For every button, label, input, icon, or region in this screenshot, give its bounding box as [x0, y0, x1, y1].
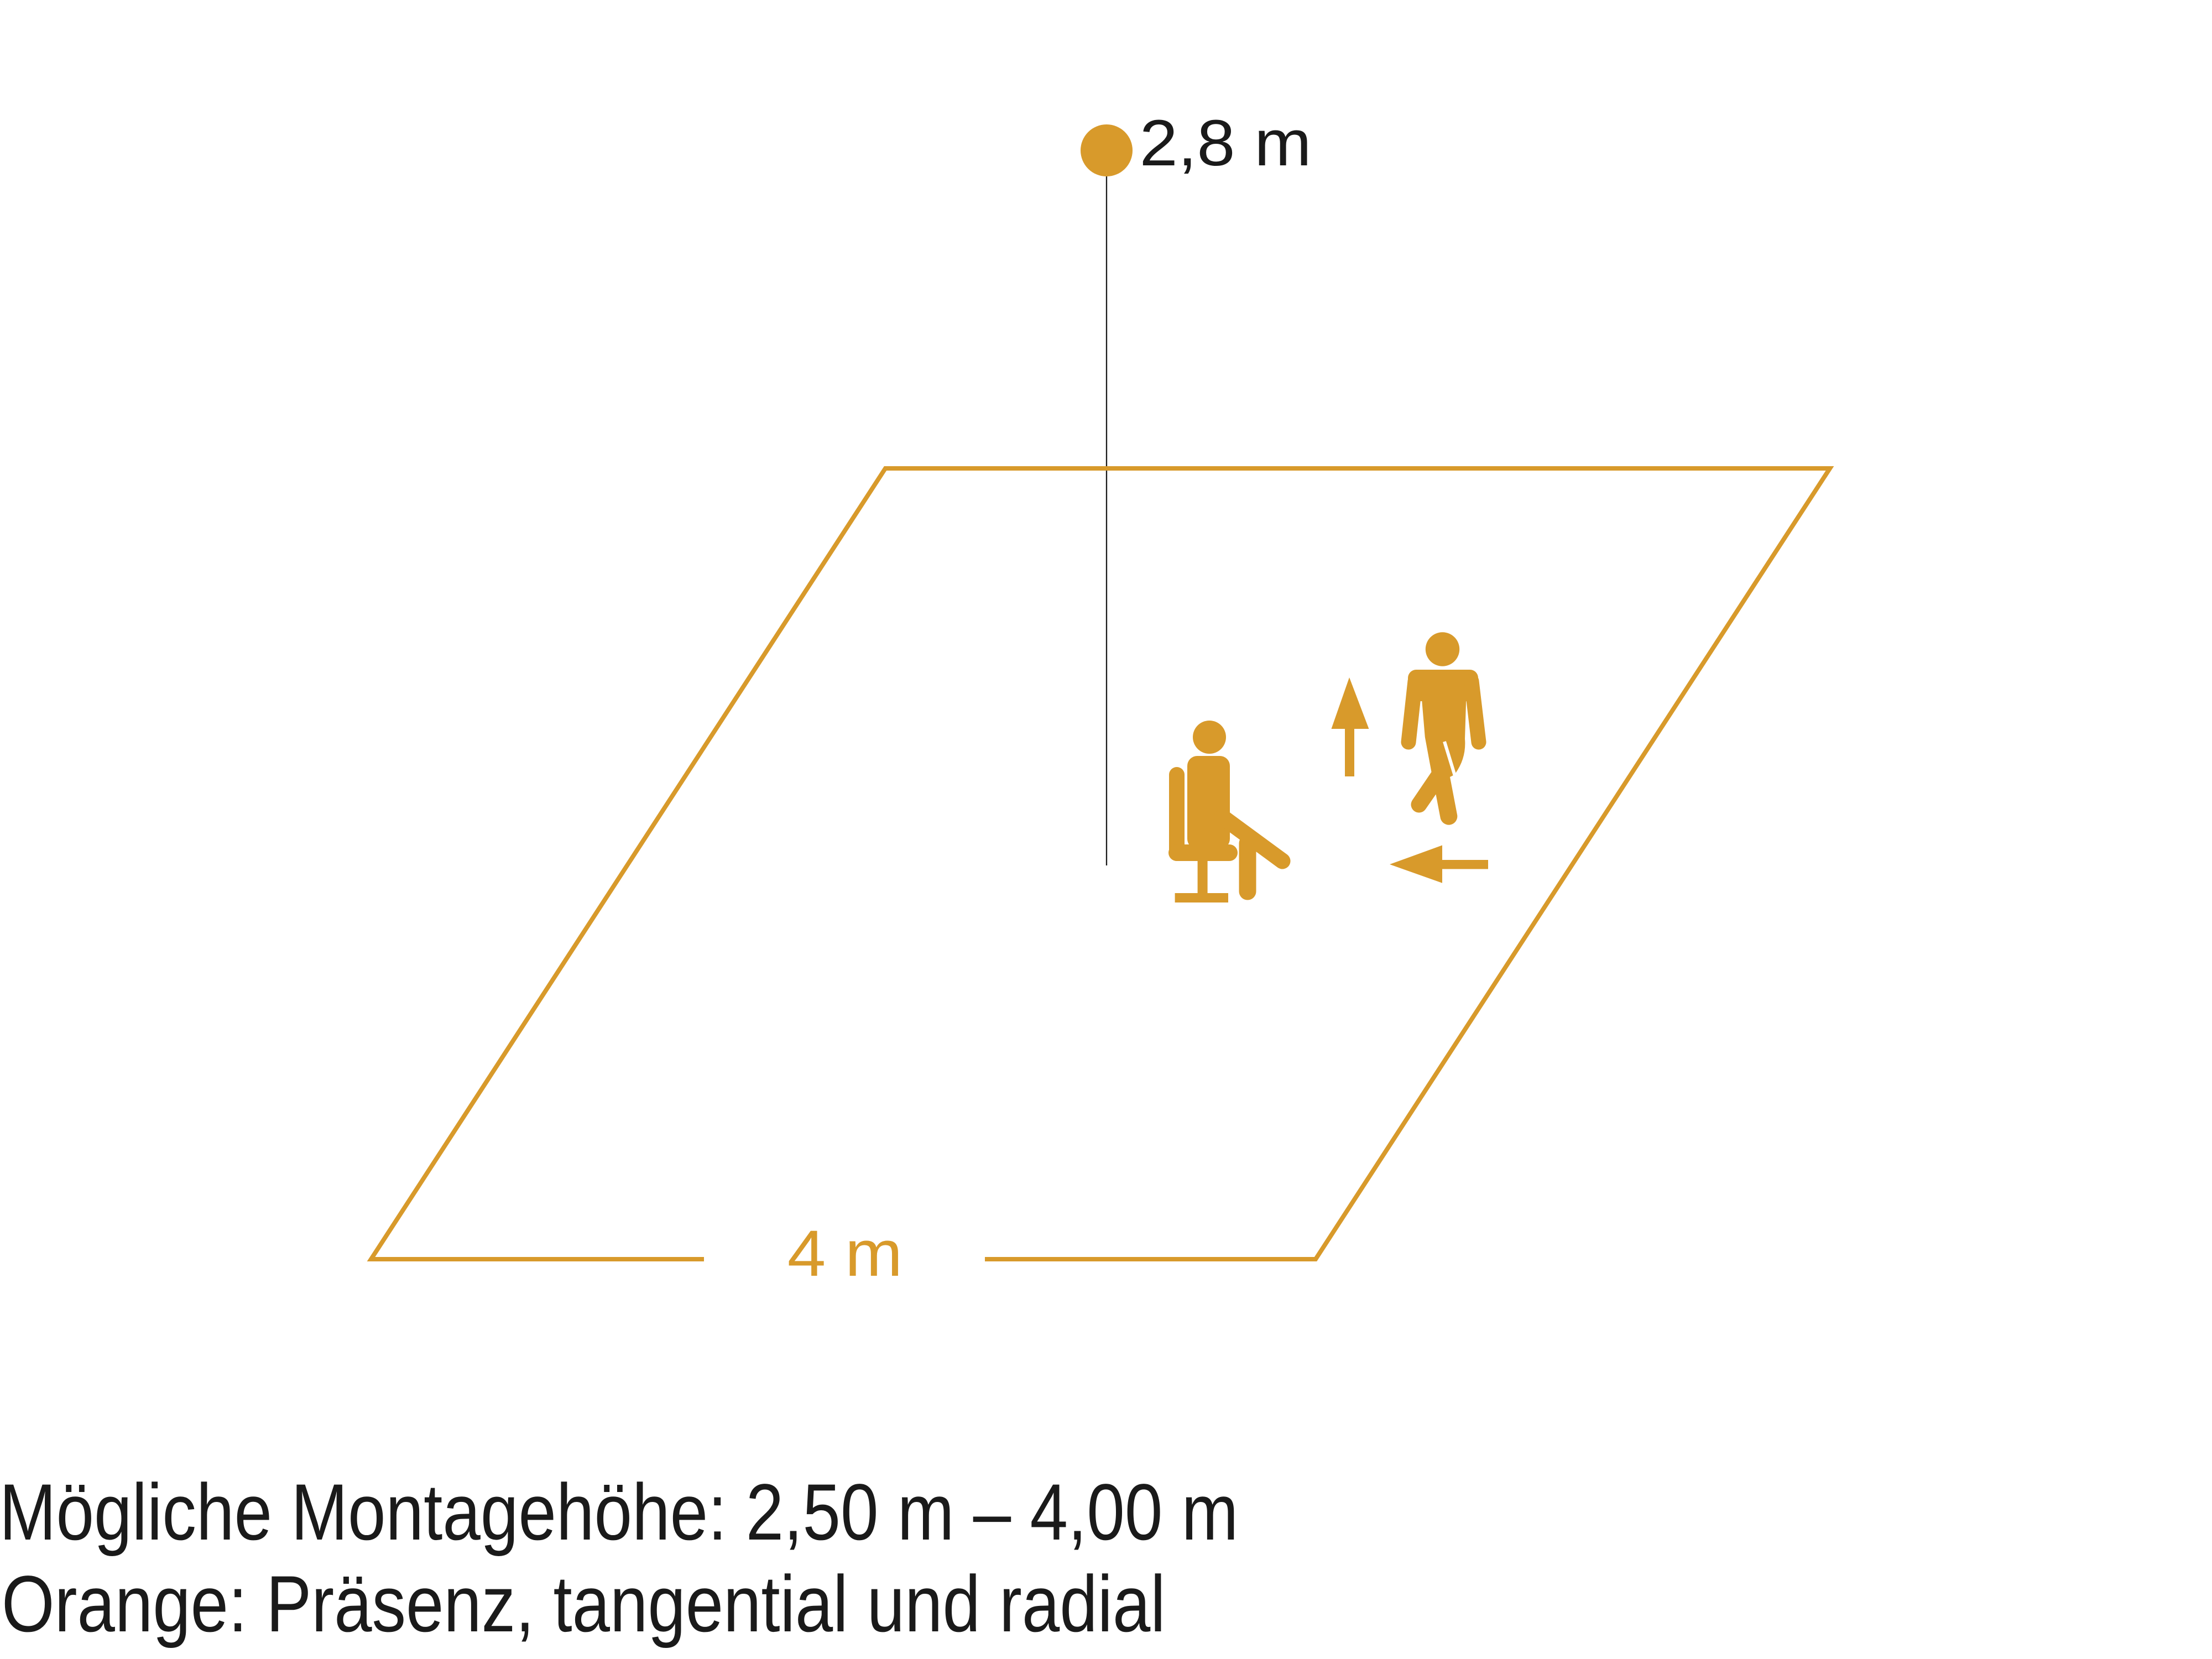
svg-text:2,8 m: 2,8 m [1140, 107, 1312, 180]
svg-text:Orange: Präsenz, tangential un: Orange: Präsenz, tangential und radial [2, 1559, 1166, 1648]
svg-text:4 m: 4 m [787, 1217, 902, 1290]
svg-text:Mögliche Montagehöhe: 2,50 m –: Mögliche Montagehöhe: 2,50 m – 4,00 m [0, 1467, 1238, 1557]
